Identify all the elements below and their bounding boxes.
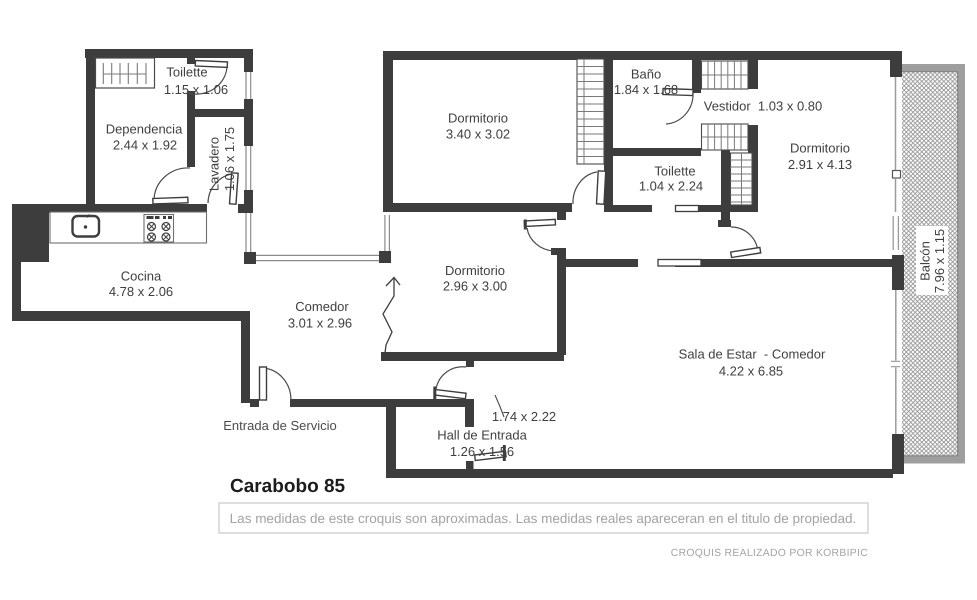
svg-text:3.01 x 2.96: 3.01 x 2.96	[288, 316, 352, 331]
svg-text:Hall de Entrada: Hall de Entrada	[437, 428, 527, 443]
svg-text:Carabobo 85: Carabobo 85	[230, 476, 346, 497]
svg-text:Vestidor 1.03 x 0.80: Vestidor 1.03 x 0.80	[704, 99, 823, 114]
svg-text:Las medidas de este croquis so: Las medidas de este croquis son aproxima…	[230, 511, 857, 526]
svg-text:4.22 x 6.85: 4.22 x 6.85	[719, 364, 783, 379]
svg-text:Entrada de Servicio: Entrada de Servicio	[223, 418, 336, 433]
svg-text:7.96 x 1.15: 7.96 x 1.15	[932, 229, 947, 293]
svg-text:CROQUIS REALIZADO POR KORBIPIC: CROQUIS REALIZADO POR KORBIPIC	[671, 548, 868, 559]
svg-text:1.84 x 1.68: 1.84 x 1.68	[614, 82, 678, 97]
svg-text:Comedor: Comedor	[295, 299, 349, 314]
svg-text:4.78 x 2.06: 4.78 x 2.06	[109, 284, 173, 299]
svg-text:Balcón: Balcón	[918, 241, 933, 281]
svg-text:Baño: Baño	[631, 67, 661, 82]
svg-text:Dormitorio: Dormitorio	[445, 263, 505, 278]
svg-text:2.44 x 1.92: 2.44 x 1.92	[113, 138, 177, 153]
svg-text:Sala de Estar - Comedor: Sala de Estar - Comedor	[679, 347, 826, 362]
svg-text:1.04 x 2.24: 1.04 x 2.24	[639, 179, 703, 194]
svg-text:1.15 x 1.06: 1.15 x 1.06	[164, 82, 228, 97]
svg-text:Toilette: Toilette	[166, 65, 207, 80]
svg-text:Toilette: Toilette	[654, 164, 695, 179]
svg-text:Cocina: Cocina	[121, 269, 162, 284]
svg-text:2.96 x 3.00: 2.96 x 3.00	[443, 279, 507, 294]
svg-text:Dependencia: Dependencia	[106, 122, 183, 137]
svg-text:Lavadero: Lavadero	[207, 137, 222, 191]
svg-text:1.74 x 2.22: 1.74 x 2.22	[492, 409, 556, 424]
svg-text:1.26 x 1.56: 1.26 x 1.56	[450, 444, 514, 459]
svg-text:2.91 x 4.13: 2.91 x 4.13	[788, 157, 852, 172]
svg-text:1.06 x 1.75: 1.06 x 1.75	[222, 127, 237, 191]
svg-text:Dormitorio: Dormitorio	[448, 111, 508, 126]
svg-text:3.40 x 3.02: 3.40 x 3.02	[446, 127, 510, 142]
svg-text:Dormitorio: Dormitorio	[790, 141, 850, 156]
